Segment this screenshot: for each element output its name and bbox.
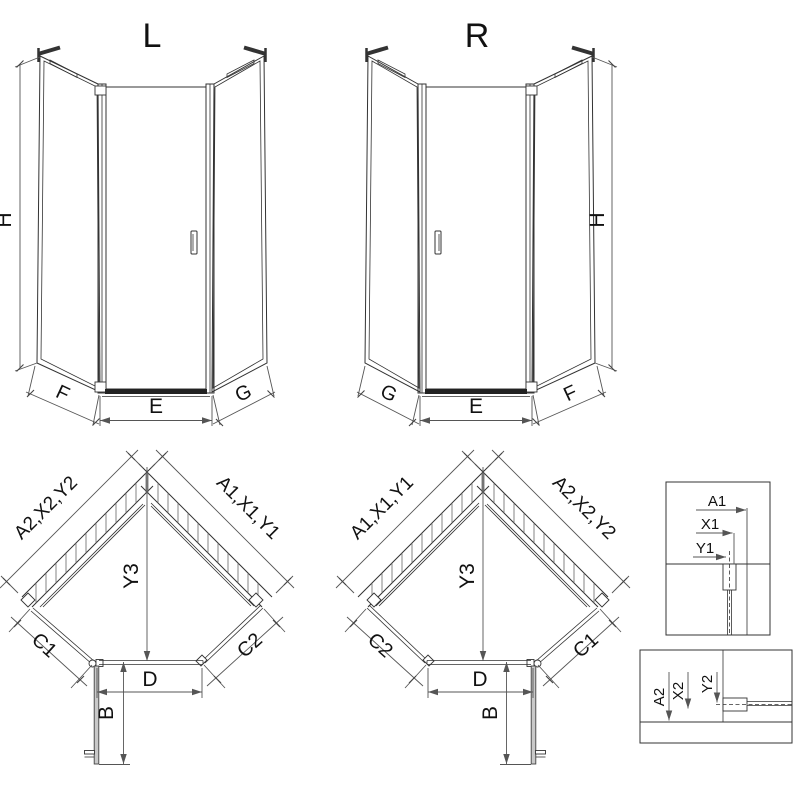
- front-right-height-label: H: [586, 212, 609, 227]
- plan-right-swing-label: B: [479, 706, 502, 720]
- front-left-variant-label: L: [143, 17, 162, 55]
- detail-top-a-label: A1: [708, 493, 726, 510]
- front-geometry-right: [357, 48, 617, 427]
- plan-left-wall-left-label: A2,X2,Y2: [10, 472, 82, 544]
- plan-right-door-width-label: D: [472, 668, 487, 691]
- detail-top-y-label: Y1: [696, 540, 714, 557]
- front-left-height-label: H: [0, 212, 16, 227]
- plan-view-right: A1,X1,Y1 A2,X2,Y2 Y3 C2 C1 D B: [336, 450, 630, 765]
- plan-view-left: A2,X2,Y2 A1,X1,Y1 Y3 C1 C2 D B: [0, 450, 294, 765]
- front-left-f-label: F: [52, 381, 72, 406]
- plan-left-depth-label: Y3: [120, 563, 143, 589]
- detail-bottom-x-label: X2: [670, 682, 687, 700]
- shower-enclosure-technical-drawing: L H F E G R G E F H A2,X2,Y2 A1,X1,Y1 Y3…: [0, 0, 800, 800]
- front-left-g-label: G: [232, 380, 255, 407]
- front-view-left: L H F E G: [0, 17, 275, 426]
- front-right-variant-label: R: [465, 17, 490, 55]
- front-geometry-left: [15, 48, 275, 427]
- plan-left-door-width-label: D: [142, 668, 157, 691]
- plan-right-wall-left-label: A1,X1,Y1: [346, 472, 418, 544]
- detail-bottom-y-label: Y2: [699, 675, 716, 693]
- front-right-e-label: E: [469, 395, 483, 418]
- detail-view-top: A1 X1 Y1: [666, 482, 770, 635]
- front-view-right: R G E F H: [357, 17, 617, 426]
- detail-view-bottom: A2 X2 Y2: [640, 650, 792, 743]
- drawing-svg: L H F E G R G E F H A2,X2,Y2 A1,X1,Y1 Y3…: [0, 0, 800, 800]
- plan-right-wall-right-label: A2,X2,Y2: [548, 472, 620, 544]
- front-left-e-label: E: [149, 395, 163, 418]
- front-right-g-label: G: [377, 380, 400, 407]
- detail-bottom-glass: [747, 702, 792, 706]
- detail-top-x-label: X1: [701, 516, 719, 533]
- plan-left-wall-right-label: A1,X1,Y1: [212, 472, 284, 544]
- plan-right-depth-label: Y3: [456, 563, 479, 589]
- plan-left-swing-label: B: [95, 706, 118, 720]
- front-right-f-label: F: [560, 381, 580, 406]
- detail-bottom-a-label: A2: [651, 688, 668, 706]
